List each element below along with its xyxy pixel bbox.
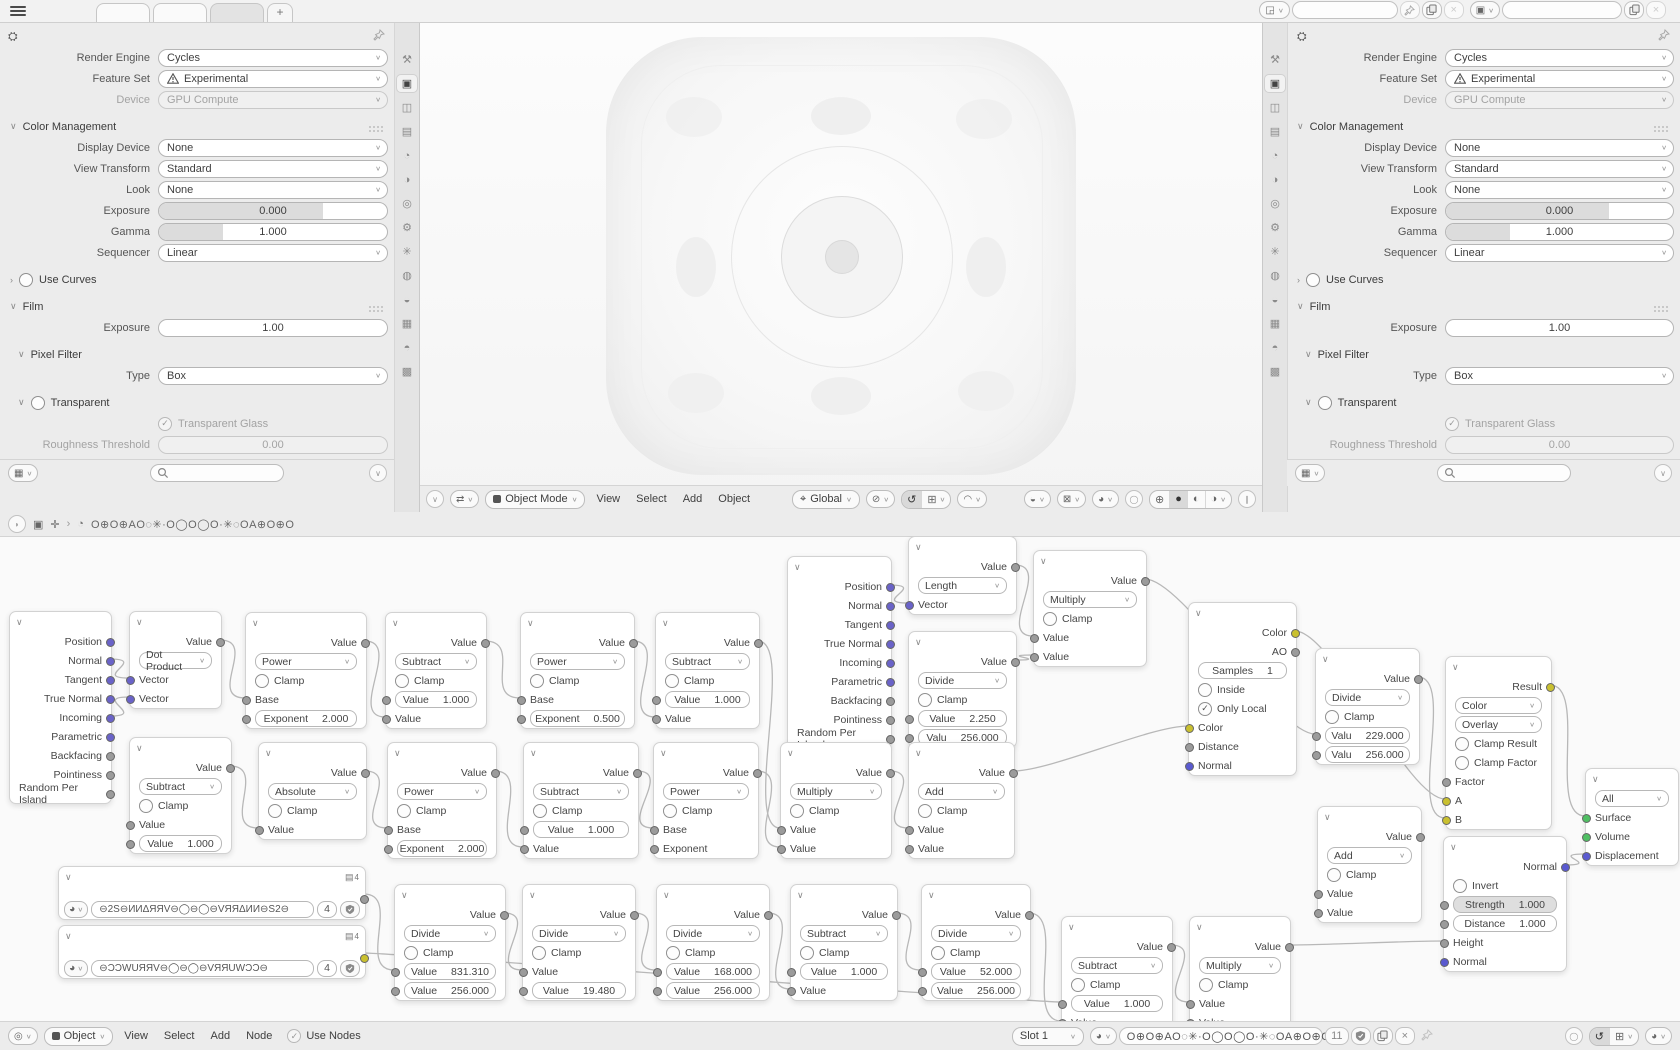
properties-tab-12[interactable]: ◓ <box>397 339 417 356</box>
node-value-field[interactable]: Exponent2.000 <box>255 710 357 727</box>
node-socket-input[interactable] <box>777 845 786 854</box>
setting-view-transform[interactable]: Standard∨ <box>1445 160 1674 178</box>
node-socket-input[interactable] <box>1440 939 1449 948</box>
node-operation-select[interactable]: Absolute∨ <box>268 783 357 800</box>
node-checkbox-clamp[interactable]: Clamp <box>1325 710 1374 724</box>
node-socket-output[interactable] <box>886 697 895 706</box>
node-value-field[interactable]: Value19.480 <box>532 982 626 999</box>
node-checkbox-clamp[interactable]: Clamp <box>533 804 582 818</box>
checkbox[interactable] <box>158 417 172 431</box>
snap-dropdown[interactable]: ⊘∨ <box>866 490 895 508</box>
setting-type[interactable]: Box∨ <box>1445 367 1674 385</box>
node-socket-input[interactable] <box>517 715 526 724</box>
properties-tab-11[interactable]: ▦ <box>397 315 417 332</box>
panel-header-pixel-filter[interactable]: ∨Pixel Filter <box>0 349 389 361</box>
viewport-canvas[interactable] <box>420 23 1262 486</box>
workspace-tab[interactable] <box>153 3 207 22</box>
panel-header-color-management[interactable]: ∨Color Management <box>1287 121 1654 133</box>
node-vector-math-length[interactable]: ∨ValueLength∨Vector <box>908 536 1017 615</box>
node-checkbox-clamp[interactable]: Clamp <box>931 946 980 960</box>
node-socket-input[interactable] <box>1582 814 1591 823</box>
menu-icon[interactable] <box>10 6 26 16</box>
checkbox[interactable] <box>931 946 945 960</box>
panel-header-use-curves[interactable]: ›Use Curves <box>1287 273 1674 287</box>
node-socket-input[interactable] <box>1440 901 1449 910</box>
checkbox[interactable] <box>1199 978 1213 992</box>
checkbox[interactable] <box>1455 756 1469 770</box>
users-count[interactable]: 4 <box>317 901 337 918</box>
snap-settings-dropdown[interactable]: ⊞∨ <box>921 491 950 508</box>
node-socket-output[interactable] <box>1291 629 1300 638</box>
drag-grip[interactable] <box>1654 126 1656 128</box>
node-math-add-2[interactable]: ∨ValueAdd∨ClampValueValue <box>1317 806 1422 923</box>
menu-object[interactable]: Object <box>713 493 755 505</box>
node-operation-select[interactable]: Divide∨ <box>1325 689 1410 706</box>
node-socket-output[interactable] <box>1011 563 1020 572</box>
view-layer-browse-button[interactable]: ▣∨ <box>1470 1 1500 19</box>
properties-tab-2[interactable]: ◫ <box>1265 99 1285 116</box>
collapse-icon[interactable]: ∨ <box>65 931 72 942</box>
collapse-icon[interactable]: ∨ <box>1068 922 1075 933</box>
node-socket-output[interactable] <box>886 621 895 630</box>
node-socket-input[interactable] <box>384 826 393 835</box>
view-layer-name-field[interactable] <box>1502 1 1622 19</box>
use-nodes-checkbox[interactable]: Use Nodes <box>287 1029 360 1043</box>
node-value-field[interactable]: Value256.000 <box>931 982 1021 999</box>
xray-toggle[interactable]: ◯ <box>1125 490 1143 508</box>
node-socket-output[interactable] <box>216 638 225 647</box>
node-operation-select[interactable]: Divide∨ <box>666 925 760 942</box>
node-socket-output[interactable] <box>754 639 763 648</box>
editor-type-button[interactable]: ◎∨ <box>8 1027 38 1045</box>
checkbox[interactable] <box>1453 879 1467 893</box>
node-checkbox-clamp[interactable]: Clamp <box>404 946 453 960</box>
node-material-output[interactable]: ∨All∨SurfaceVolumeDisplacement <box>1585 768 1679 866</box>
node-value-field[interactable]: Value256.000 <box>666 982 760 999</box>
setting-roughness-threshold[interactable]: 0.00 <box>1445 436 1674 454</box>
node-group-2[interactable]: ∨▤4◕∨⊖ƆƆWUЯЯV⊖◯⊖◯⊖VЯЯUWƆƆ⊖4 <box>58 925 366 979</box>
checkbox[interactable] <box>532 946 546 960</box>
node-math-subtract-2[interactable]: ∨ValueSubtract∨ClampValue1.000Value <box>655 612 760 729</box>
node-value-field[interactable]: Value256.000 <box>404 982 496 999</box>
node-geometry-2[interactable]: ∨PositionNormalTangentTrue NormalIncomin… <box>787 556 892 749</box>
node-socket-output[interactable] <box>629 639 638 648</box>
setting-look[interactable]: None∨ <box>1445 181 1674 199</box>
node-socket-output[interactable] <box>106 695 115 704</box>
properties-tab-7[interactable]: ⚙ <box>397 219 417 236</box>
node-socket-output[interactable] <box>360 954 369 963</box>
collapse-icon[interactable]: ∨ <box>662 618 669 629</box>
node-operation-select[interactable]: Power∨ <box>255 653 357 670</box>
scene-browse-button[interactable]: ◲∨ <box>1259 1 1289 19</box>
node-socket-output[interactable] <box>1285 943 1294 952</box>
shading-wireframe-button[interactable]: ⊕ <box>1150 491 1169 508</box>
collapse-icon[interactable]: ∨ <box>915 748 922 759</box>
node-socket-input[interactable] <box>1314 909 1323 918</box>
checkbox[interactable] <box>800 946 814 960</box>
checkbox[interactable] <box>1455 737 1469 751</box>
overlays-dropdown[interactable]: ◕∨ <box>1092 490 1119 508</box>
setting-sequencer[interactable]: Linear∨ <box>1445 244 1674 262</box>
gizmos-dropdown[interactable]: ⊠∨ <box>1057 490 1086 508</box>
node-math-power-1[interactable]: ∨ValuePower∨ClampBaseExponent2.000 <box>245 612 367 729</box>
menu-select[interactable]: Select <box>159 1030 200 1042</box>
transform-orientation-dropdown[interactable]: ⌖Global∨ <box>792 490 860 509</box>
node-math-multiply-3[interactable]: ∨ValueMultiply∨ClampValueValue <box>1189 916 1291 1022</box>
checkbox[interactable] <box>530 674 544 688</box>
object-visibility-dropdown[interactable]: ◒∨ <box>1024 490 1051 508</box>
node-socket-input[interactable] <box>777 826 786 835</box>
workspace-tab[interactable] <box>96 3 150 22</box>
node-socket-output[interactable] <box>1546 683 1555 692</box>
collapse-icon[interactable]: ∨ <box>1195 608 1202 619</box>
node-checkbox-clamp[interactable]: Clamp <box>790 804 839 818</box>
node-socket-input[interactable] <box>519 968 528 977</box>
setting-look[interactable]: None∨ <box>158 181 388 199</box>
checkbox[interactable] <box>1445 417 1459 431</box>
properties-tab-10[interactable]: ◒ <box>1265 291 1285 308</box>
node-socket-output[interactable] <box>361 769 370 778</box>
collapse-icon[interactable]: ∨ <box>392 618 399 629</box>
node-math-divide-1[interactable]: ∨ValueDivide∨ClampValue2.250Valu256.000 <box>908 631 1017 748</box>
node-operation-select[interactable]: Divide∨ <box>918 672 1007 689</box>
collapse-icon[interactable]: ∨ <box>16 617 23 628</box>
properties-tab-5[interactable]: ◑ <box>397 171 417 188</box>
node-socket-input[interactable] <box>918 987 927 996</box>
properties-tab-1[interactable]: ▣ <box>397 75 417 92</box>
node-socket-input[interactable] <box>255 826 264 835</box>
node-operation-select[interactable]: Length∨ <box>918 577 1007 594</box>
collapse-icon[interactable]: ∨ <box>136 743 143 754</box>
node-math-power-3[interactable]: ∨ValuePower∨ClampBaseExponent2.000 <box>387 742 497 859</box>
properties-tab-3[interactable]: ▤ <box>1265 123 1285 140</box>
properties-tab-3[interactable]: ▤ <box>397 123 417 140</box>
node-socket-output[interactable] <box>361 639 370 648</box>
node-socket-output[interactable] <box>481 639 490 648</box>
node-operation-select[interactable]: Color∨ <box>1455 697 1542 714</box>
node-checkbox-clamp[interactable]: Clamp <box>1043 612 1092 626</box>
node-socket-output[interactable] <box>226 764 235 773</box>
drag-grip[interactable] <box>369 306 371 308</box>
setting-device[interactable]: GPU Compute∨ <box>158 91 388 109</box>
checkbox[interactable] <box>1325 710 1339 724</box>
checkbox[interactable] <box>1043 612 1057 626</box>
node-socket-output[interactable] <box>106 790 115 799</box>
menu-select[interactable]: Select <box>631 493 672 505</box>
node-socket-output[interactable] <box>633 769 642 778</box>
material-users-count[interactable]: 11 <box>1325 1027 1349 1045</box>
node-socket-output[interactable] <box>1141 577 1150 586</box>
node-socket-output[interactable] <box>1011 658 1020 667</box>
node-checkbox-invert[interactable]: Invert <box>1453 879 1498 893</box>
node-group-1[interactable]: ∨▤4◕∨⊖2S⊖ИИΔЯЯV⊖◯⊖◯⊖VЯЯΔИИ⊖S2⊖4 <box>58 866 366 920</box>
fake-user-shield-icon[interactable] <box>1351 1027 1371 1045</box>
snap-node-icon[interactable]: ✛ <box>50 518 59 531</box>
collapse-icon[interactable]: ∨ <box>530 748 537 759</box>
material-name-field[interactable]: O⊕O⊕AO◌✳·O◯O◯O·✳◌OA⊕O⊕O <box>1119 1027 1323 1045</box>
setting-sequencer[interactable]: Linear∨ <box>158 244 388 262</box>
snap-toggle[interactable]: ↺ <box>902 491 921 508</box>
node-socket-input[interactable] <box>391 968 400 977</box>
collapse-icon[interactable]: ∨ <box>915 542 922 553</box>
node-math-subtract-6[interactable]: ∨ValueSubtract∨ClampValue1.000Value <box>1061 916 1173 1022</box>
node-math-divide-5[interactable]: ∨ValueDivide∨ClampValue168.000Value256.0… <box>656 884 770 1001</box>
interaction-tool-button[interactable]: ⇄∨ <box>450 490 479 508</box>
node-socket-input[interactable] <box>905 715 914 724</box>
panel-header-color-management[interactable]: ∨Color Management <box>0 121 369 133</box>
node-socket-input[interactable] <box>787 987 796 996</box>
node-socket-input[interactable] <box>1582 833 1591 842</box>
node-socket-output[interactable] <box>500 911 509 920</box>
node-socket-output[interactable] <box>886 716 895 725</box>
drag-grip[interactable] <box>369 126 371 128</box>
node-socket-input[interactable] <box>1185 743 1194 752</box>
node-socket-input[interactable] <box>1582 852 1591 861</box>
node-socket-input[interactable] <box>126 840 135 849</box>
collapse-icon[interactable]: ∨ <box>928 890 935 901</box>
search-input[interactable] <box>150 464 284 482</box>
node-socket-input[interactable] <box>517 696 526 705</box>
node-checkbox-clamp[interactable]: Clamp <box>1071 978 1120 992</box>
fake-user-shield-icon[interactable] <box>340 960 360 977</box>
node-value-field[interactable]: Value1.000 <box>665 691 750 708</box>
node-socket-output[interactable] <box>630 911 639 920</box>
node-checkbox-clamp[interactable]: Clamp <box>1199 978 1248 992</box>
node-operation-select[interactable]: All∨ <box>1595 790 1669 807</box>
node-socket-input[interactable] <box>1442 778 1451 787</box>
node-socket-input[interactable] <box>905 845 914 854</box>
properties-tab-0[interactable]: ⚒ <box>397 51 417 68</box>
node-checkbox-clamp[interactable]: Clamp <box>800 946 849 960</box>
panel-header-use-curves[interactable]: ›Use Curves <box>0 273 389 287</box>
collapse-icon[interactable]: ∨ <box>136 617 143 628</box>
datablock-name-field[interactable]: ⊖ƆƆWUЯЯV⊖◯⊖◯⊖VЯЯUWƆƆ⊖ <box>91 960 314 977</box>
shading-solid-button[interactable]: ● <box>1169 491 1187 508</box>
properties-tab-7[interactable]: ⚙ <box>1265 219 1285 236</box>
checkbox[interactable] <box>1306 273 1320 287</box>
node-socket-input[interactable] <box>1030 634 1039 643</box>
snap-toggle[interactable]: ↺ <box>1590 1028 1609 1045</box>
properties-tab-8[interactable]: ✳ <box>1265 243 1285 260</box>
node-socket-output[interactable] <box>1414 675 1423 684</box>
checkbox[interactable] <box>663 804 677 818</box>
checkbox[interactable] <box>1071 978 1085 992</box>
node-socket-input[interactable] <box>653 987 662 996</box>
properties-tab-13[interactable]: ▩ <box>397 363 417 380</box>
checkbox[interactable] <box>255 674 269 688</box>
setting-checkbox-transparent-glass[interactable]: Transparent Glass <box>1445 417 1555 431</box>
scene-name-field[interactable] <box>1292 1 1398 19</box>
node-operation-select[interactable]: Subtract∨ <box>533 783 629 800</box>
node-math-add-1[interactable]: ∨ValueAdd∨ClampValueValue <box>908 742 1015 859</box>
node-socket-input[interactable] <box>787 968 796 977</box>
node-socket-output[interactable] <box>764 911 773 920</box>
node-socket-output[interactable] <box>106 657 115 666</box>
collapse-icon[interactable]: ∨ <box>1324 812 1331 823</box>
menu-add[interactable]: Add <box>205 1030 235 1042</box>
properties-tab-13[interactable]: ▩ <box>1265 363 1285 380</box>
collapse-icon[interactable]: ∨ <box>529 890 536 901</box>
setting-gamma[interactable]: 1.000 <box>158 223 388 241</box>
node-socket-output[interactable] <box>106 771 115 780</box>
node-socket-output[interactable] <box>886 602 895 611</box>
node-socket-output[interactable] <box>886 678 895 687</box>
node-socket-input[interactable] <box>242 715 251 724</box>
node-socket-output[interactable] <box>1561 863 1570 872</box>
collapse-icon[interactable]: ∨ <box>394 748 401 759</box>
setting-feature-set[interactable]: Experimental∨ <box>158 70 388 88</box>
node-socket-input[interactable] <box>126 821 135 830</box>
setting-roughness-threshold[interactable]: 0.00 <box>158 436 388 454</box>
setting-exposure[interactable]: 0.000 <box>1445 202 1674 220</box>
node-socket-output[interactable] <box>106 752 115 761</box>
node-checkbox-clamp[interactable]: Clamp <box>532 946 581 960</box>
node-socket-output[interactable] <box>106 638 115 647</box>
node-socket-input[interactable] <box>1186 1000 1195 1009</box>
node-operation-select[interactable]: Power∨ <box>397 783 487 800</box>
checkbox[interactable] <box>1327 868 1341 882</box>
collapse-icon[interactable]: ∨ <box>252 618 259 629</box>
collapse-icon[interactable]: ∨ <box>915 637 922 648</box>
shader-type-dropdown[interactable]: Object∨ <box>44 1027 114 1046</box>
pin-material-icon[interactable]: ▣ <box>33 518 43 531</box>
node-socket-input[interactable] <box>1440 920 1449 929</box>
node-value-field[interactable]: Value168.000 <box>666 963 760 980</box>
browse-datablock-button[interactable]: ◕∨ <box>64 901 88 918</box>
checkbox[interactable] <box>19 273 33 287</box>
setting-device[interactable]: GPU Compute∨ <box>1445 91 1674 109</box>
setting-exposure[interactable]: 1.00 <box>158 319 388 337</box>
node-socket-input[interactable] <box>382 715 391 724</box>
node-socket-input[interactable] <box>520 845 529 854</box>
node-checkbox-inside[interactable]: Inside <box>1198 683 1245 697</box>
node-vector-math-dot-product[interactable]: ∨ValueDot Product∨VectorVector <box>129 611 222 709</box>
checkbox[interactable] <box>1318 396 1332 410</box>
node-socket-input[interactable] <box>652 715 661 724</box>
node-value-field[interactable]: Value831.310 <box>404 963 496 980</box>
node-operation-select[interactable]: Subtract∨ <box>800 925 888 942</box>
viewport-object[interactable] <box>606 37 1076 475</box>
node-socket-input[interactable] <box>1312 732 1321 741</box>
node-socket-input[interactable] <box>650 826 659 835</box>
collapse-icon[interactable]: ∨ <box>663 890 670 901</box>
node-socket-input[interactable] <box>520 826 529 835</box>
node-socket-output[interactable] <box>1416 833 1425 842</box>
collapse-icon[interactable]: ∨ <box>660 748 667 759</box>
node-socket-input[interactable] <box>519 987 528 996</box>
setting-render-engine[interactable]: Cycles∨ <box>1445 49 1674 67</box>
collapse-icon[interactable]: ∨ <box>1322 654 1329 665</box>
node-socket-output[interactable] <box>491 769 500 778</box>
checkbox[interactable] <box>268 804 282 818</box>
node-math-subtract-5[interactable]: ∨ValueSubtract∨ClampValue1.000Value <box>790 884 898 1001</box>
material-slot-dropdown[interactable]: Slot 1∨ <box>1012 1027 1084 1046</box>
properties-tab-2[interactable]: ◫ <box>397 99 417 116</box>
copy-icon[interactable] <box>1422 1 1442 19</box>
node-socket-output[interactable] <box>886 659 895 668</box>
node-socket-output[interactable] <box>1025 911 1034 920</box>
node-value-field[interactable]: Value1.000 <box>1071 995 1163 1012</box>
workspace-tab[interactable] <box>210 3 264 22</box>
node-value-field[interactable]: Valu229.000 <box>1325 727 1410 744</box>
node-math-power-4[interactable]: ∨ValuePower∨ClampBaseExponent <box>653 742 759 859</box>
node-checkbox-clamp[interactable]: Clamp <box>665 674 714 688</box>
node-socket-input[interactable] <box>382 696 391 705</box>
node-checkbox-clamp[interactable]: Clamp <box>139 799 188 813</box>
panel-header-transparent[interactable]: ∨Transparent <box>0 396 389 410</box>
node-operation-select[interactable]: Power∨ <box>663 783 749 800</box>
node-socket-output[interactable] <box>106 733 115 742</box>
browse-datablock-button[interactable]: ◕∨ <box>64 960 88 977</box>
collapse-icon[interactable]: ∨ <box>794 562 801 573</box>
unlink-icon[interactable]: × <box>1444 1 1464 19</box>
unlink-icon[interactable]: × <box>1395 1027 1415 1045</box>
node-socket-output[interactable] <box>886 640 895 649</box>
display-filter-button[interactable]: ▦∨ <box>1295 464 1325 482</box>
node-socket-input[interactable] <box>652 696 661 705</box>
node-checkbox-only-local[interactable]: Only Local <box>1198 702 1267 716</box>
setting-display-device[interactable]: None∨ <box>158 139 388 157</box>
setting-exposure[interactable]: 1.00 <box>1445 319 1674 337</box>
node-checkbox-clamp[interactable]: Clamp <box>530 674 579 688</box>
node-operation-select[interactable]: Multiply∨ <box>790 783 882 800</box>
node-socket-input[interactable] <box>126 695 135 704</box>
node-operation-select[interactable]: Divide∨ <box>532 925 626 942</box>
copy-icon[interactable] <box>1624 1 1644 19</box>
node-operation-select[interactable]: Multiply∨ <box>1199 957 1281 974</box>
pin-icon[interactable] <box>1400 1 1420 19</box>
node-socket-input[interactable] <box>1185 762 1194 771</box>
setting-view-transform[interactable]: Standard∨ <box>158 160 388 178</box>
node-socket-output[interactable] <box>892 911 901 920</box>
node-socket-input[interactable] <box>653 968 662 977</box>
datablock-name-field[interactable]: ⊖2S⊖ИИΔЯЯV⊖◯⊖◯⊖VЯЯΔИИ⊖S2⊖ <box>91 901 314 918</box>
node-checkbox-clamp[interactable]: Clamp <box>255 674 304 688</box>
overlays-dropdown[interactable]: ◕∨ <box>1645 1027 1672 1045</box>
checkbox[interactable] <box>404 946 418 960</box>
node-operation-select[interactable]: Add∨ <box>1327 847 1412 864</box>
panel-header-transparent[interactable]: ∨Transparent <box>1287 396 1674 410</box>
node-socket-input[interactable] <box>1440 958 1449 967</box>
node-socket-output[interactable] <box>886 769 895 778</box>
node-operation-select[interactable]: Power∨ <box>530 653 625 670</box>
properties-tab-6[interactable]: ◎ <box>397 195 417 212</box>
collapse-icon[interactable]: ∨ <box>401 890 408 901</box>
node-value-field[interactable]: Value52.000 <box>931 963 1021 980</box>
node-operation-select[interactable]: Subtract∨ <box>1071 957 1163 974</box>
editor-type-button[interactable]: ◗ <box>8 515 26 533</box>
node-socket-input[interactable] <box>1312 751 1321 760</box>
menu-node[interactable]: Node <box>241 1030 277 1042</box>
node-math-multiply-1[interactable]: ∨ValueMultiply∨ClampValueValue <box>1033 550 1147 667</box>
options-button[interactable]: ∨ <box>1654 464 1672 482</box>
properties-tab-1[interactable]: ▣ <box>1265 75 1285 92</box>
collapse-icon[interactable]: ∨ <box>1196 922 1203 933</box>
node-checkbox-clamp[interactable]: Clamp <box>397 804 446 818</box>
properties-tab-6[interactable]: ◎ <box>1265 195 1285 212</box>
display-filter-button[interactable]: ▦∨ <box>8 464 38 482</box>
node-math-divide-4[interactable]: ∨ValueDivide∨ClampValueValue19.480 <box>522 884 636 1001</box>
setting-feature-set[interactable]: Experimental∨ <box>1445 70 1674 88</box>
checkbox[interactable] <box>397 804 411 818</box>
checkbox[interactable] <box>918 804 932 818</box>
node-socket-input[interactable] <box>242 696 251 705</box>
panel-header-film[interactable]: ∨Film <box>0 301 369 313</box>
node-value-field[interactable]: Exponent2.000 <box>397 840 487 857</box>
node-socket-input[interactable] <box>1442 797 1451 806</box>
node-value-field[interactable]: Value2.250 <box>918 710 1007 727</box>
collapse-icon[interactable]: ∨ <box>1040 556 1047 567</box>
